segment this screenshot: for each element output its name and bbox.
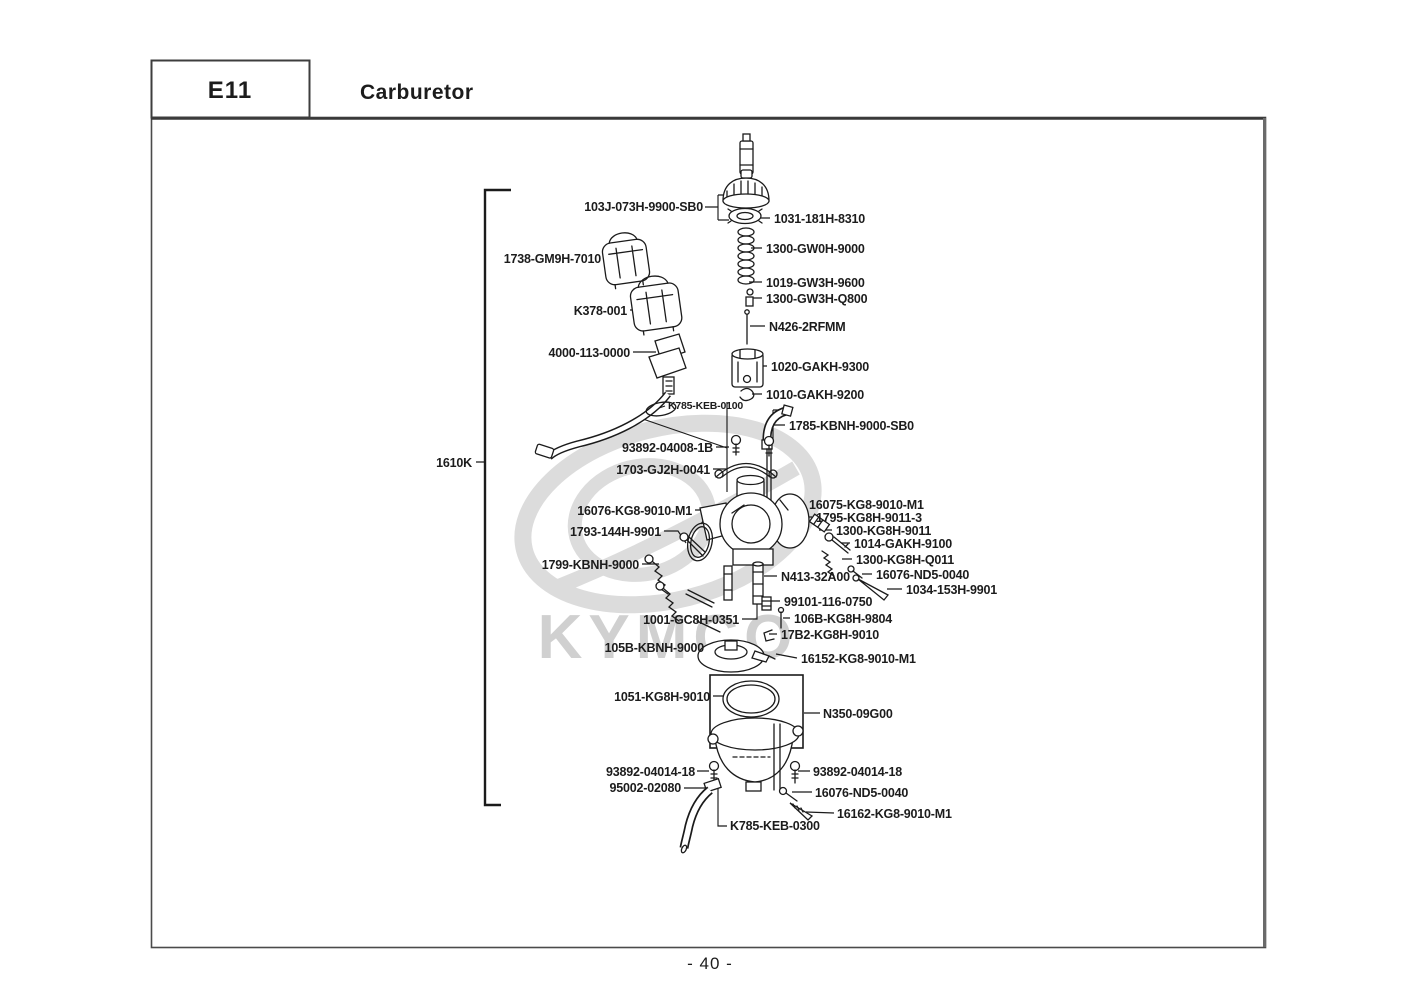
part-label: N426-2RFMM xyxy=(769,320,846,334)
part-label: K785-KEB-0100 xyxy=(668,400,743,412)
part-label: K378-001 xyxy=(574,304,628,318)
part-label: 16076-KG8-9010-M1 xyxy=(577,504,692,518)
part-label: 1010-GAKH-9200 xyxy=(766,388,864,402)
part-label: 1001-GC8H-0351 xyxy=(643,613,739,627)
part-label: 17B2-KG8H-9010 xyxy=(781,628,879,642)
parts-diagram: E11 Carburetor KYMCO 1610K xyxy=(0,0,1415,1000)
part-label: 1300-GW3H-Q800 xyxy=(766,292,868,306)
part-label: 93892-04014-18 xyxy=(813,765,902,779)
part-label: 16152-KG8-9010-M1 xyxy=(801,652,916,666)
part-label: 16075-KG8-9010-M1 xyxy=(809,498,924,512)
part-label: 95002-02080 xyxy=(610,781,682,795)
part-label: 1014-GAKH-9100 xyxy=(854,537,952,551)
part-label: 1300-GW0H-9000 xyxy=(766,242,865,256)
part-label: 99101-116-0750 xyxy=(784,595,873,609)
part-label: 16162-KG8-9010-M1 xyxy=(837,807,952,821)
part-spring-seat xyxy=(746,289,753,306)
part-label: 1795-KG8H-9011-3 xyxy=(816,511,922,525)
group-label: 1610K xyxy=(436,456,472,470)
part-label: 1799-KBNH-9000 xyxy=(542,558,639,572)
part-label: 1034-153H-9901 xyxy=(906,583,997,597)
part-label: 105B-KBNH-9000 xyxy=(605,641,705,655)
part-label: 93892-04014-18 xyxy=(606,765,695,779)
part-label: 1051-KG8H-9010 xyxy=(614,690,710,704)
part-label: 1019-GW3H-9600 xyxy=(766,276,865,290)
page-number: - 40 - xyxy=(687,954,733,973)
part-label: 103J-073H-9900-SB0 xyxy=(584,200,703,214)
part-label: 1300-KG8H-9011 xyxy=(836,524,931,538)
page-title: Carburetor xyxy=(360,81,474,104)
section-code: E11 xyxy=(208,77,252,104)
part-label: 1785-KBNH-9000-SB0 xyxy=(789,419,914,433)
part-lock-ring xyxy=(728,209,762,224)
part-slow-jet xyxy=(762,597,771,610)
part-label: N413-32A00 xyxy=(781,570,850,584)
catalog-page: E11 Carburetor KYMCO 1610K xyxy=(0,0,1415,1000)
part-label: 1703-GJ2H-0041 xyxy=(616,463,710,477)
part-label: N350-09G00 xyxy=(823,707,893,721)
part-label: 1793-144H-9901 xyxy=(570,525,661,539)
part-label: 1020-GAKH-9300 xyxy=(771,360,869,374)
part-label: 1738-GM9H-7010 xyxy=(504,252,602,266)
part-label: 16076-ND5-0040 xyxy=(876,568,969,582)
part-label: 93892-04008-1B xyxy=(622,441,713,455)
part-label: 1031-181H-8310 xyxy=(774,212,865,226)
part-label: 1300-KG8H-Q011 xyxy=(856,553,954,567)
part-label: 16076-ND5-0040 xyxy=(815,786,908,800)
part-throttle-valve xyxy=(732,349,763,387)
part-label: 106B-KG8H-9804 xyxy=(794,612,892,626)
part-label: 4000-113-0000 xyxy=(548,346,630,360)
part-label: K785-KEB-0300 xyxy=(730,819,820,833)
